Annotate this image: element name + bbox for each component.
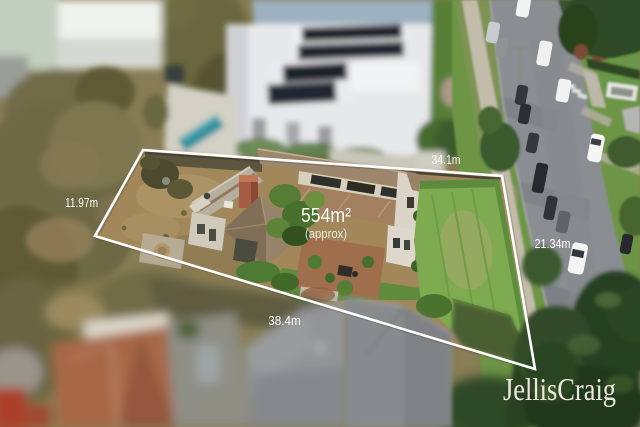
svg-text:554m²: 554m² bbox=[301, 205, 351, 227]
svg-text:11.97m: 11.97m bbox=[65, 195, 98, 210]
svg-text:21.34m: 21.34m bbox=[535, 236, 571, 251]
svg-text:(approx): (approx) bbox=[305, 227, 347, 241]
svg-text:38.4m: 38.4m bbox=[268, 313, 301, 328]
svg-text:JellisCraig: JellisCraig bbox=[503, 371, 616, 407]
svg-text:34.1m: 34.1m bbox=[432, 152, 461, 167]
